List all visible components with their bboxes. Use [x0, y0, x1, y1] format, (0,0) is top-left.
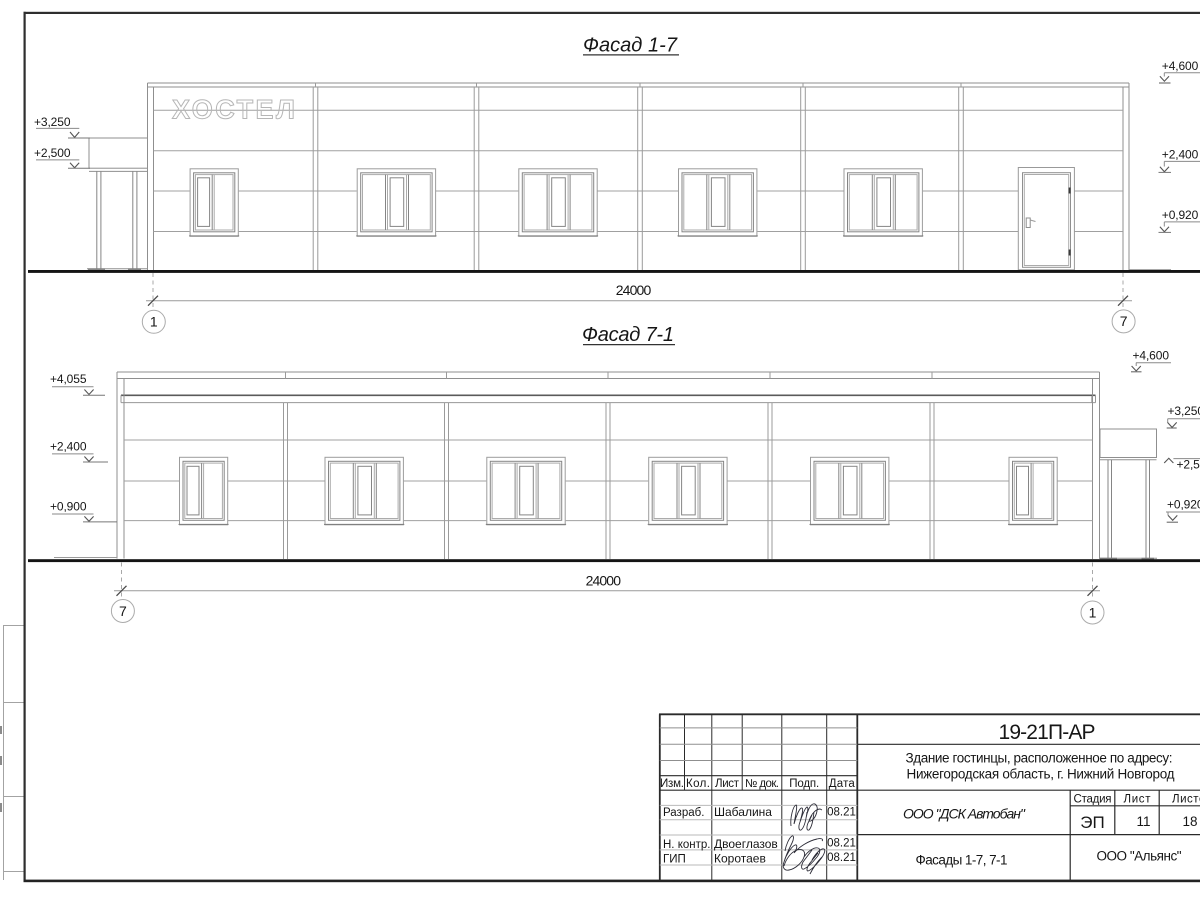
svg-text:Кол.: Кол.	[686, 778, 710, 790]
svg-text:+0,900: +0,900	[50, 499, 87, 513]
svg-text:+4,600: +4,600	[1162, 59, 1199, 73]
svg-text:7: 7	[1120, 313, 1128, 329]
svg-text:+2,400: +2,400	[1162, 148, 1199, 162]
svg-text:Н. контр.: Н. контр.	[663, 839, 710, 851]
svg-text:+4,055: +4,055	[50, 372, 87, 386]
svg-text:19-21П-АР: 19-21П-АР	[999, 721, 1096, 744]
svg-text:Фасад 7-1: Фасад 7-1	[582, 324, 674, 346]
svg-text:ЭП: ЭП	[1080, 813, 1104, 832]
svg-text:Подп.: Подп.	[789, 778, 819, 790]
svg-text:1: 1	[1089, 604, 1097, 620]
svg-text:+2,400: +2,400	[50, 439, 87, 453]
svg-text:Нижегородская область, г. Нижн: Нижегородская область, г. Нижний Новгоро…	[907, 767, 1175, 782]
svg-text:Двоеглазов: Двоеглазов	[714, 837, 778, 851]
svg-text:ООО "ДСК Автобан": ООО "ДСК Автобан"	[903, 805, 1026, 821]
svg-text:08.21: 08.21	[827, 806, 856, 818]
svg-text:Коротаев: Коротаев	[714, 852, 766, 866]
svg-text:Изм.: Изм.	[660, 778, 684, 790]
svg-text:+0,920: +0,920	[1162, 208, 1199, 222]
svg-text:18: 18	[1182, 814, 1197, 829]
svg-text:7: 7	[119, 603, 127, 619]
svg-text:+2,500: +2,500	[34, 146, 71, 160]
svg-text:08.21: 08.21	[827, 852, 856, 864]
svg-text:ООО "Альянс": ООО "Альянс"	[1097, 848, 1182, 863]
svg-text:24000: 24000	[616, 282, 652, 298]
svg-text:Лист: Лист	[715, 778, 740, 790]
svg-text:1: 1	[150, 314, 158, 330]
svg-text:+3,250: +3,250	[34, 115, 71, 129]
svg-text:+4,600: +4,600	[1133, 349, 1170, 363]
svg-text:11: 11	[1136, 814, 1150, 829]
svg-text:Фасады 1-7, 7-1: Фасады 1-7, 7-1	[916, 852, 1008, 867]
svg-text:Шабалина: Шабалина	[714, 805, 772, 819]
svg-text:Лист: Лист	[1124, 793, 1152, 805]
svg-text:08.21: 08.21	[827, 837, 856, 849]
svg-text:№ док.: № док.	[745, 778, 779, 790]
svg-text:24000: 24000	[586, 572, 622, 588]
svg-text:Разраб.: Разраб.	[663, 807, 704, 819]
svg-text:+3,250: +3,250	[1168, 404, 1200, 418]
svg-text:+2,500: +2,500	[1177, 457, 1200, 471]
svg-text:Дата: Дата	[829, 778, 856, 790]
svg-text:Стадия: Стадия	[1074, 793, 1112, 805]
svg-text:Листов: Листов	[1172, 793, 1200, 805]
svg-text:ГИП: ГИП	[663, 854, 686, 866]
svg-text:Фасад 1-7: Фасад 1-7	[583, 35, 678, 57]
svg-text:Здание гостинцы, расположенное: Здание гостинцы, расположенное по адресу…	[906, 751, 1173, 766]
svg-text:+0,920: +0,920	[1167, 497, 1200, 511]
